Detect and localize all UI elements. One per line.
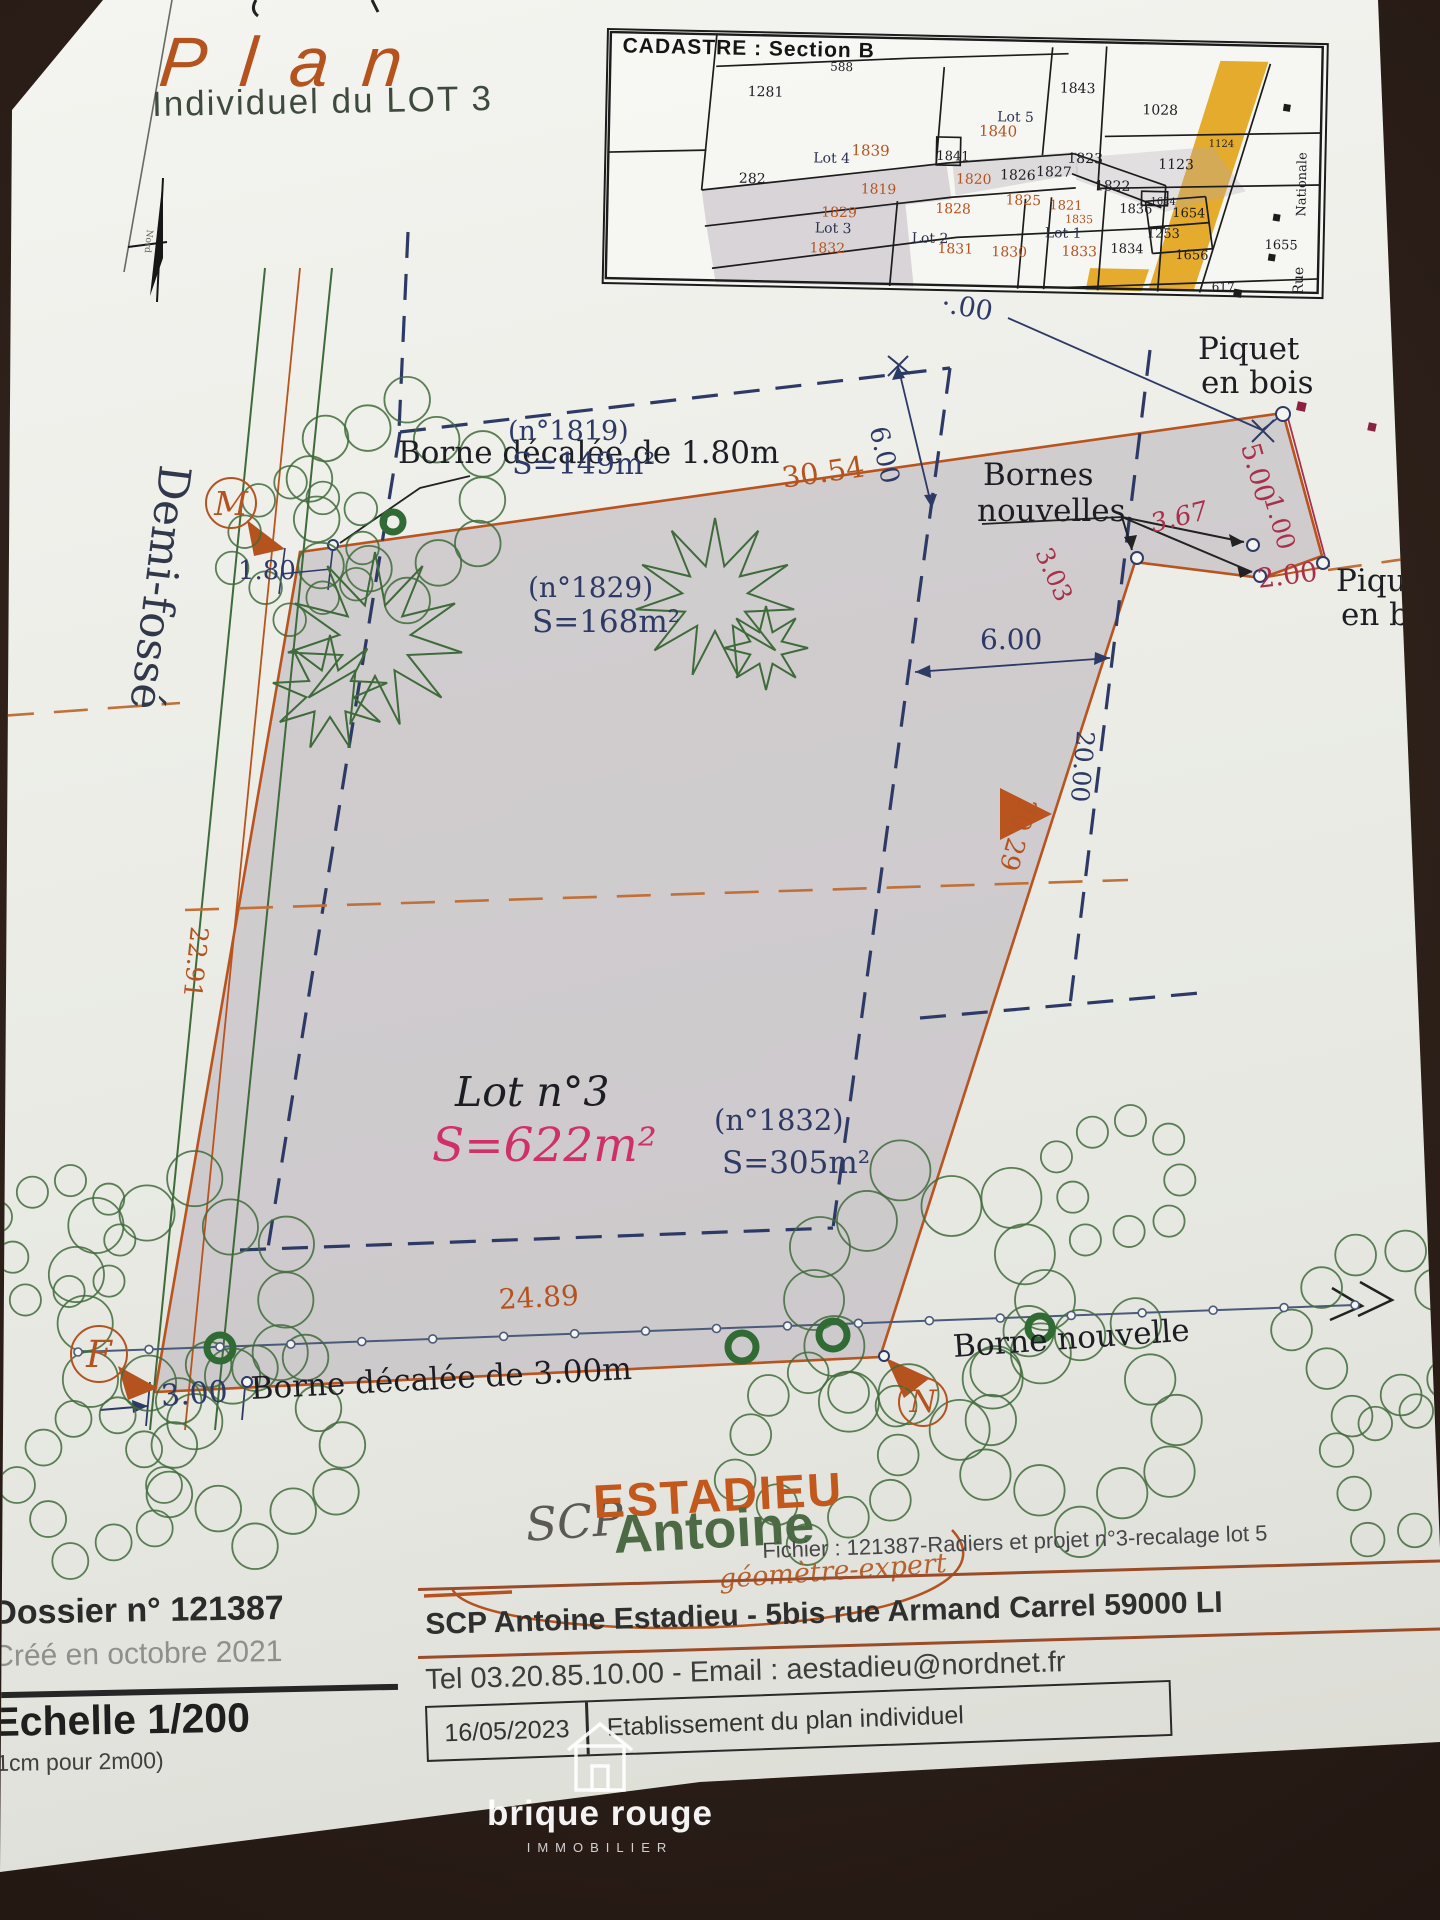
paper-sheet: Plan Individuel du LOT 3 CADASTRE : Sect… [0,0,1440,1920]
cadastre-parcel-label: 1655 [1264,239,1297,253]
plan-label: (n°1819) [508,418,629,445]
cadastre-parcel-label: 1822 [1095,179,1131,194]
cadastre-parcel-label: 282 [739,172,766,187]
cadastre-parcel-label: 1830 [991,245,1027,260]
plan-label: 6.00 [980,626,1042,654]
plan-label: S=168m² [532,607,680,638]
cadastre-parcel-label: 1829 [821,206,857,221]
cadastre-parcel-label: 1832 [809,241,845,256]
plan-label: Piquet [1336,566,1437,597]
cadastre-parcel-label: 1656 [1175,249,1208,263]
medallion-m: M [205,477,257,529]
created-date: Créé en octobre 2021 [0,1637,283,1672]
cadastre-parcel-label: Nationale [1295,152,1309,217]
cadastre-parcel-label: 1820 [956,172,992,187]
cadastre-parcel-label: 1124 [1209,140,1235,151]
plan-label: 2.00 [1256,559,1319,593]
scale-sub-label: 1cm pour 2m00) [0,1749,164,1775]
cadastre-parcel-label: Lot 3 [815,221,852,236]
cadastre-parcel-label: 1823 [1067,152,1103,167]
plan-label: (n°1829) [528,574,653,602]
dossier-number: Dossier n° 121387 [0,1591,284,1630]
cadastre-parcel-label: 1836 [1119,203,1152,217]
cadastre-parcel-label: 1835 [1065,214,1093,226]
plan-label: S=305m² [722,1148,870,1179]
cadastre-parcel-label: Lot 4 [813,151,850,166]
cadastre-parcel-label: 1827 [1036,165,1072,180]
plan-label: en bois [1341,600,1440,631]
plan-label: Bornes [983,460,1093,491]
house-icon [562,1716,638,1794]
medallion-f: F [70,1325,128,1383]
cadastre-parcel-label: 1819 [861,182,897,197]
medallion-letter: M [214,484,248,523]
plan-label: (n°1832) [714,1106,844,1135]
plan-label: 20.00 [1067,730,1098,803]
cadastre-parcel-label: 1826 [1000,168,1036,183]
cadastre-inset: CADASTRE : Section B [602,28,1329,299]
plan-label: 3.00 [160,1377,229,1412]
cadastre-parcel-label: 617 [1212,281,1235,293]
cadastre-parcel-label: 1841 [936,150,969,164]
cadastre-parcel-label: 1840 [979,124,1017,140]
plan-label: nouvelles [977,496,1126,527]
cadastre-parcel-label: Rue [1292,267,1307,295]
agency-watermark: brique rouge IMMOBILIER [470,1716,730,1855]
cadastre-parcel-label: 588 [830,61,853,73]
plan-label: ·.00 [939,290,994,326]
plan-label: S=149m² [512,450,655,480]
cadastre-parcel-label: 1123 [1158,158,1194,173]
cadastre-parcel-label: 1828 [935,202,971,217]
cadastre-parcel-label: 1834 [1110,243,1143,257]
plan-label: Piquet [1198,334,1299,365]
watermark-name: brique rouge [470,1794,730,1834]
plan-label: 24.89 [498,1282,580,1314]
cadastre-parcel-label: 1654 [1172,207,1205,221]
cadastre-map [603,30,1326,307]
cadastre-parcel-label: 1839 [851,143,889,159]
plan-label: 1.80 [238,558,296,584]
cadastre-parcel-label: 1843 [1060,81,1096,96]
cadastre-parcel-label: 1253 [1147,227,1180,241]
cadastre-parcel-label: 1028 [1142,103,1178,118]
plan-label: S=622m² [432,1122,657,1169]
medallion-letter: N [909,1384,936,1420]
medallion-n: N [898,1377,948,1427]
cadastre-parcel-label: 1821 [1049,199,1082,213]
cadastre-parcel-label: 1281 [748,85,784,100]
plan-label: en bois [1201,368,1314,399]
watermark-sub: IMMOBILIER [470,1840,730,1855]
plan-label: 22.91 [180,925,212,999]
cadastre-parcel-label: Lot 1 [1045,226,1082,241]
medallion-letter: F [86,1333,112,1376]
scale-label: Echelle 1/200 [0,1698,250,1743]
cadastre-parcel-label: 1833 [1061,245,1097,260]
cadastre-parcel-label: 1825 [1005,193,1041,208]
cadastre-parcel-label: 1831 [937,242,973,257]
plan-label: Nord [142,229,153,253]
plan-label: Lot n°3 [455,1072,609,1113]
page-subtitle: Individuel du LOT 3 [152,79,494,125]
